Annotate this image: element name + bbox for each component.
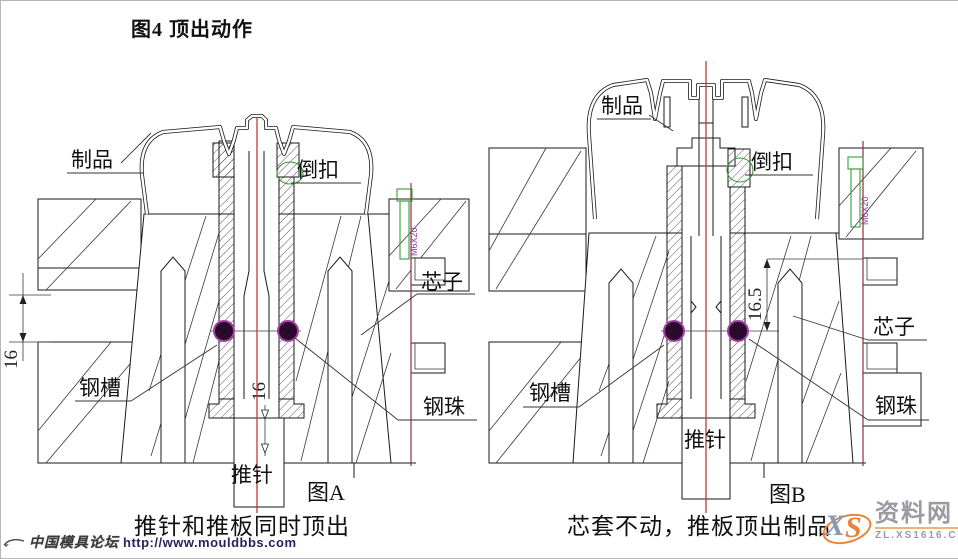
page-title: 图4 顶出动作 [131, 13, 253, 42]
figA-tag: 图A [307, 480, 345, 505]
figure-b: 16.5 M6X20 制品 倒扣 芯子 钢珠 钢槽 推针 [489, 61, 929, 513]
site-name: 资料网 [875, 501, 958, 527]
label-push-pin: 推针 [231, 463, 273, 487]
dim-pin-travel-value: 16 [249, 382, 270, 401]
forum-url[interactable]: http://www.mouldbbs.com [123, 535, 297, 550]
site-domain[interactable]: ZL.XS1616.COM [875, 527, 958, 541]
logo-letter-x: X [825, 509, 845, 543]
label-product: 制品 [601, 94, 643, 118]
label-steel-ball: 钢珠 [423, 395, 465, 419]
site-watermark: X S 资料网 ZL.XS1616.COM [819, 501, 958, 553]
steel-ball-icon [664, 321, 684, 341]
label-undercut: 倒扣 [751, 150, 793, 174]
site-text-block: 资料网 ZL.XS1616.COM [875, 501, 958, 541]
label-core: 芯子 [421, 270, 463, 294]
logo-letter-s: S [845, 511, 862, 545]
screw-label: M6X20 [409, 227, 419, 256]
steel-ball-icon [214, 321, 234, 341]
label-push-pin: 推针 [684, 428, 726, 452]
label-undercut: 倒扣 [297, 158, 339, 182]
forum-name: 中国模具论坛 [29, 532, 119, 552]
screw-label: M6X20 [860, 196, 870, 225]
steel-ball-icon [728, 321, 748, 341]
label-steel-groove: 钢槽 [529, 381, 571, 405]
dim-plate-gap-value: 16 [1, 350, 22, 369]
label-steel-groove: 钢槽 [79, 376, 121, 400]
drawing-sheet: 16 16 M6X20 制品 倒扣 芯子 钢珠 [0, 0, 958, 559]
forum-watermark: 中国模具论坛 http://www.mouldbbs.com [3, 532, 297, 552]
dim-pin-travel-value: 16.5 [745, 288, 766, 321]
mold-drawing: 16 16 M6X20 制品 倒扣 芯子 钢珠 [1, 1, 958, 558]
figB-caption: 芯套不动，推板顶出制品 [567, 507, 831, 541]
figB-tag: 图B [769, 482, 806, 507]
figure-a: 16 16 M6X20 制品 倒扣 芯子 钢珠 [1, 116, 477, 513]
label-core: 芯子 [873, 315, 915, 339]
xs-logo-icon: X S [819, 501, 873, 553]
label-product: 制品 [71, 148, 113, 172]
swoosh-icon [3, 533, 25, 551]
label-steel-ball: 钢珠 [875, 394, 917, 418]
